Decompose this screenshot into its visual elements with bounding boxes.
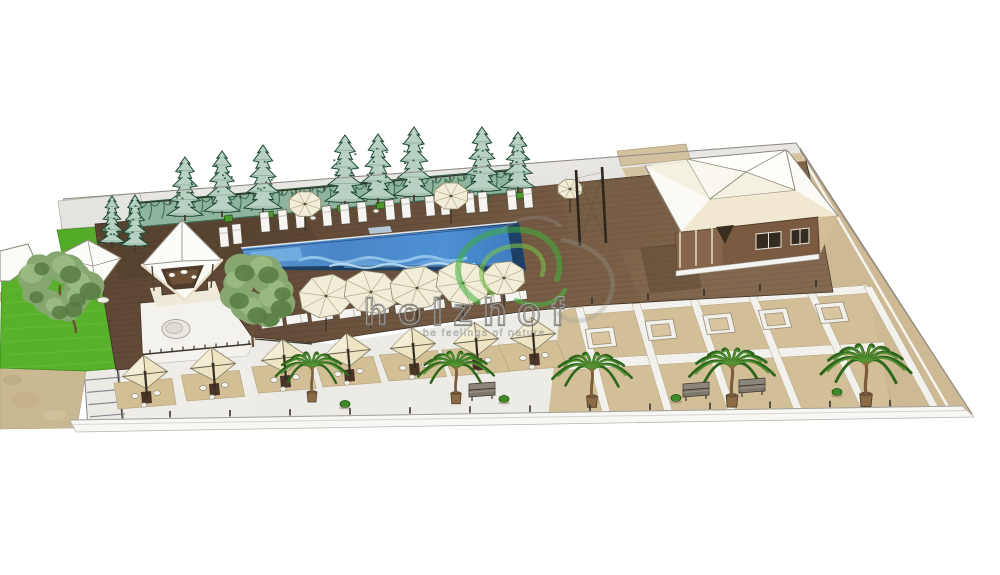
svg-text:be feelings of nature: be feelings of nature [423,327,545,339]
